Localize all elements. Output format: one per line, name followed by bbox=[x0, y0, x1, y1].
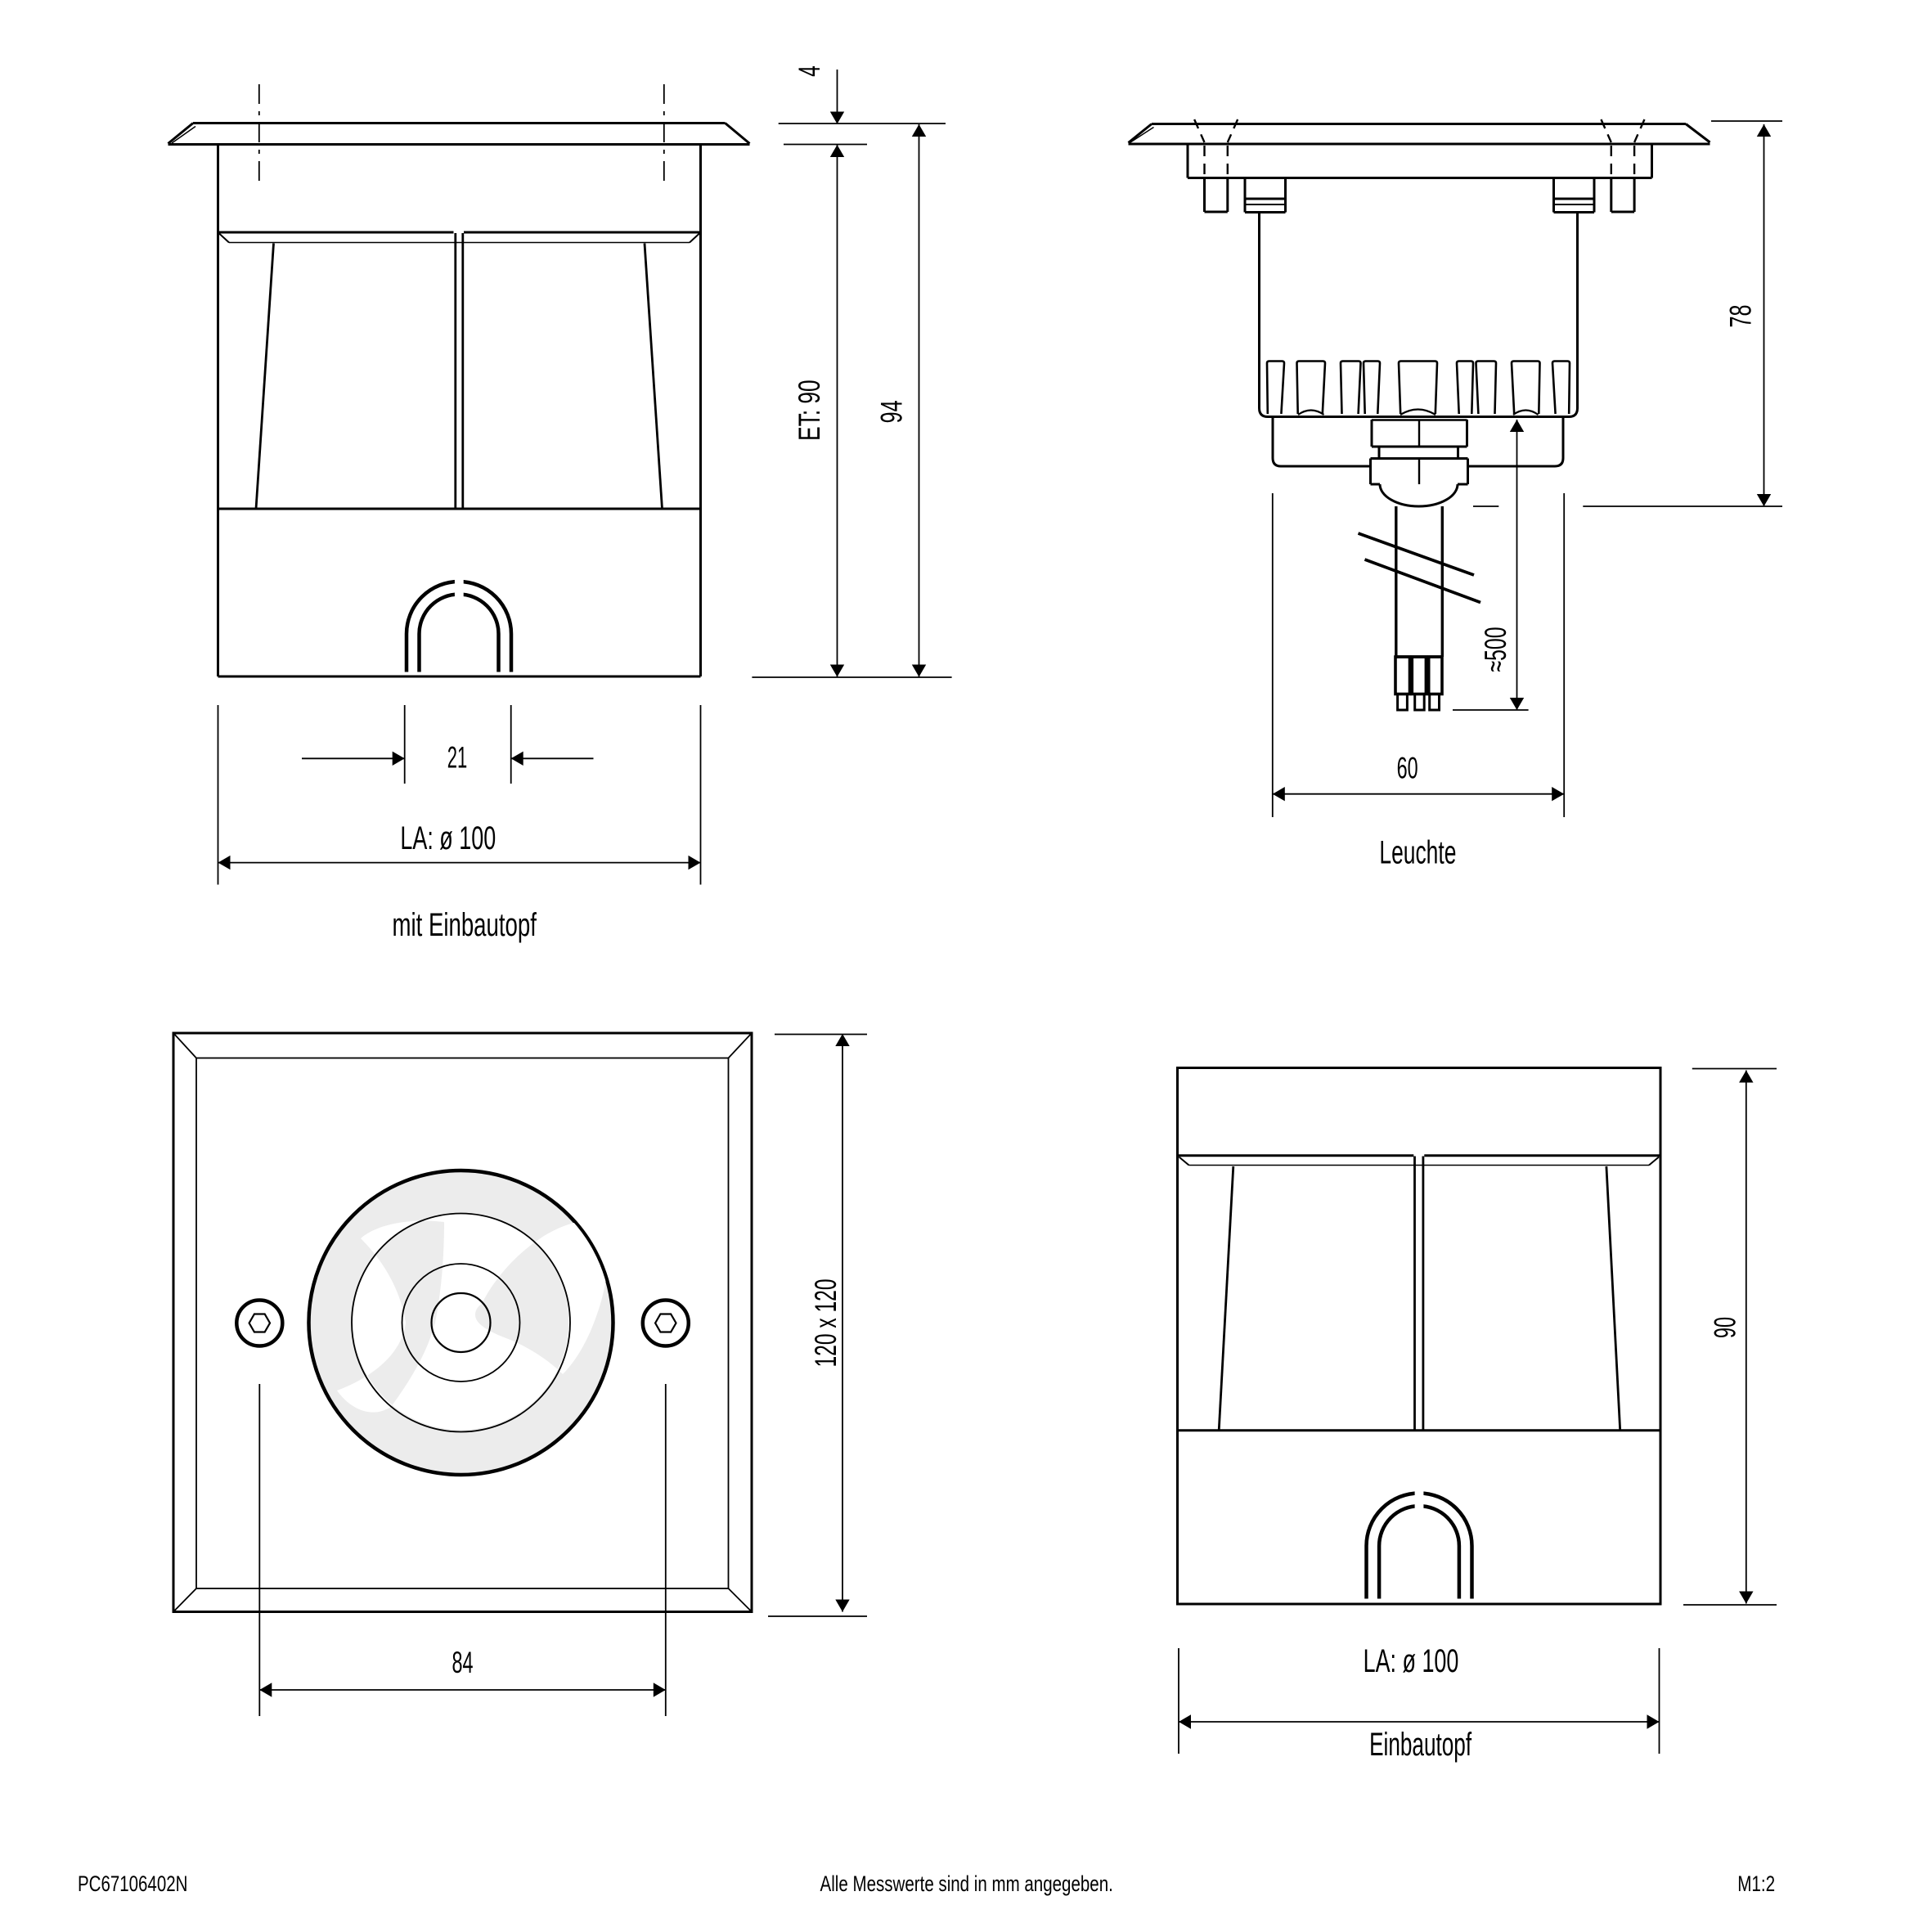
svg-text:60: 60 bbox=[1397, 752, 1418, 785]
svg-text:90: 90 bbox=[1709, 1317, 1742, 1338]
svg-text:120 x 120: 120 x 120 bbox=[809, 1279, 842, 1368]
svg-text:LA: ø 100: LA: ø 100 bbox=[400, 820, 496, 856]
svg-text:Alle Messwerte sind in mm ange: Alle Messwerte sind in mm angegeben. bbox=[820, 1871, 1113, 1896]
svg-text:78: 78 bbox=[1724, 305, 1758, 328]
svg-text:PC67106402N: PC67106402N bbox=[78, 1871, 187, 1896]
svg-text:84: 84 bbox=[452, 1646, 474, 1679]
svg-text:21: 21 bbox=[447, 741, 468, 775]
svg-text:≈500: ≈500 bbox=[1479, 627, 1512, 672]
svg-text:Leuchte: Leuchte bbox=[1379, 835, 1456, 871]
svg-text:M1:2: M1:2 bbox=[1737, 1871, 1775, 1896]
svg-text:94: 94 bbox=[875, 400, 909, 423]
svg-text:LA: ø 100: LA: ø 100 bbox=[1364, 1643, 1459, 1679]
svg-text:4: 4 bbox=[793, 65, 826, 77]
svg-text:Einbautopf: Einbautopf bbox=[1369, 1727, 1472, 1763]
svg-text:mit Einbautopf: mit Einbautopf bbox=[393, 907, 537, 943]
svg-text:ET: 90: ET: 90 bbox=[793, 380, 826, 440]
